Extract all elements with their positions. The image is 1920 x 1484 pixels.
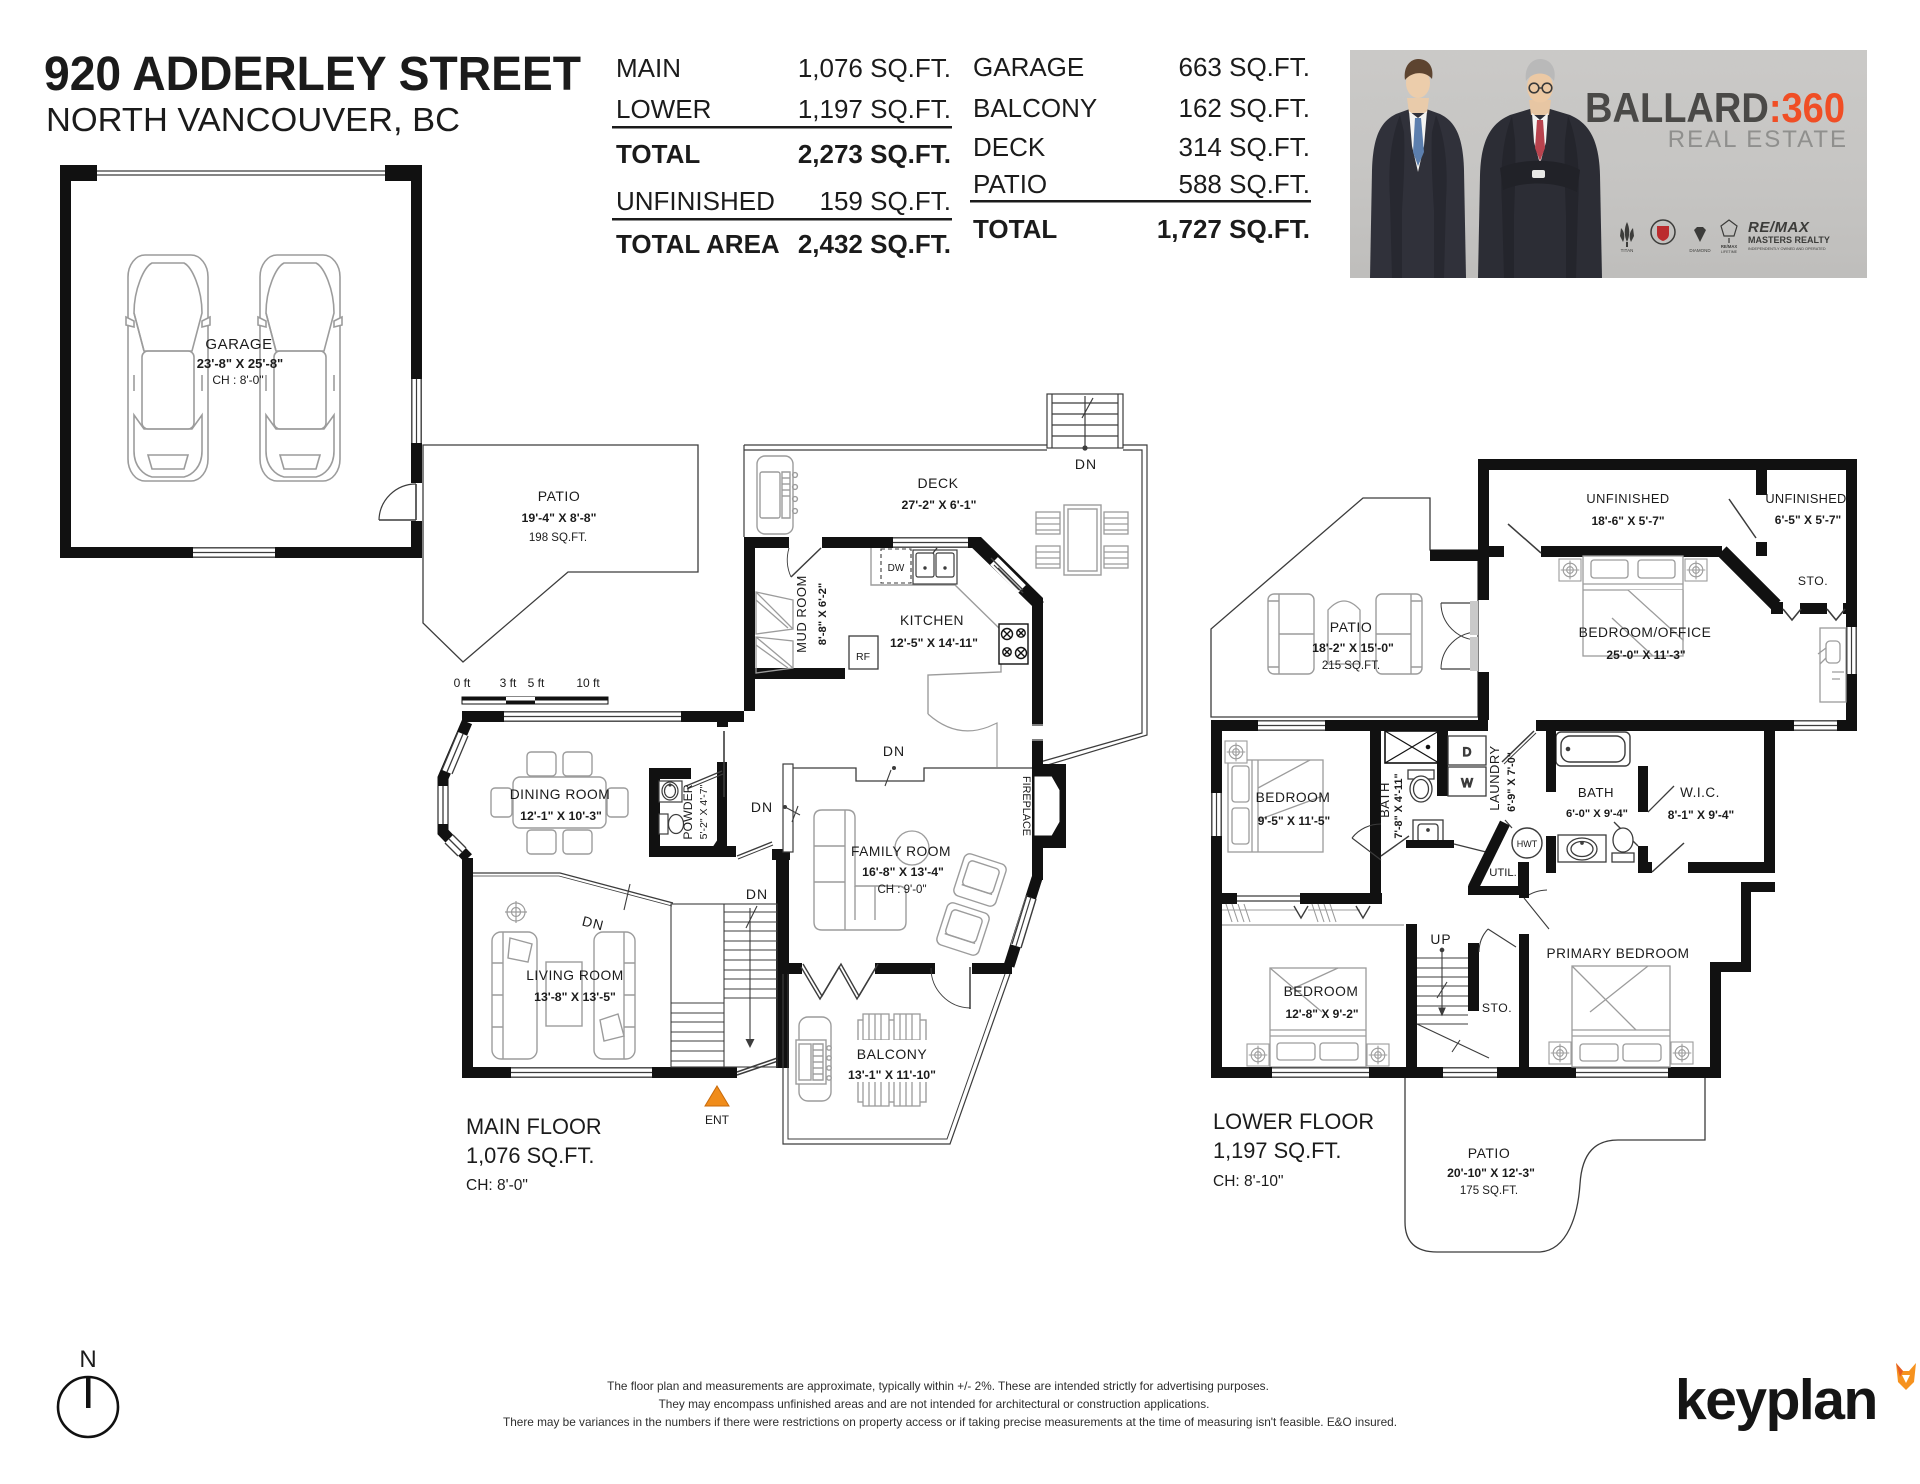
svg-text:TOTAL: TOTAL [616,139,700,169]
svg-text:162 SQ.FT.: 162 SQ.FT. [1179,93,1311,123]
svg-text:The floor plan and measurement: The floor plan and measurements are appr… [607,1379,1269,1393]
svg-text:LAUNDRY: LAUNDRY [1487,745,1502,810]
svg-text:DECK: DECK [973,132,1046,162]
svg-text:1,197 SQ.FT.: 1,197 SQ.FT. [798,94,951,124]
svg-text:BATH: BATH [1377,782,1392,818]
svg-text:8'-8" X 6'-2": 8'-8" X 6'-2" [817,583,829,646]
svg-text:N: N [79,1346,96,1373]
svg-text:PATIO: PATIO [973,169,1047,199]
svg-text:BEDROOM/OFFICE: BEDROOM/OFFICE [1579,625,1712,640]
svg-text:0 ft: 0 ft [454,676,471,690]
svg-text:13'-8" X 13'-5": 13'-8" X 13'-5" [534,990,616,1004]
svg-text:12'-1" X 10'-3": 12'-1" X 10'-3" [520,809,602,823]
svg-text:20'-10" X 12'-3": 20'-10" X 12'-3" [1447,1166,1535,1180]
svg-text:16'-8" X 13'-4": 16'-8" X 13'-4" [862,865,944,879]
svg-text:BALLARD:360: BALLARD:360 [1585,84,1845,131]
svg-text:MAIN FLOOR: MAIN FLOOR [466,1114,602,1139]
svg-text:UNFINISHED: UNFINISHED [1765,491,1846,506]
svg-text:KITCHEN: KITCHEN [900,613,964,628]
svg-text:STO.: STO. [1798,574,1828,588]
svg-text:MASTERS REALTY: MASTERS REALTY [1748,235,1830,245]
svg-text:9'-5" X 11'-5": 9'-5" X 11'-5" [1258,814,1330,828]
svg-text:PATIO: PATIO [1330,619,1372,635]
svg-text:LIFETIME: LIFETIME [1721,250,1738,254]
svg-text:5'-2" X 4'-7": 5'-2" X 4'-7" [698,784,710,839]
svg-text:7'-8" X 4'-11": 7'-8" X 4'-11" [1393,773,1405,838]
svg-text:663 SQ.FT.: 663 SQ.FT. [1179,52,1311,82]
svg-text:GARAGE: GARAGE [973,52,1084,82]
svg-text:TITAN: TITAN [1621,248,1634,253]
svg-text:RE/MAX: RE/MAX [1748,219,1810,236]
svg-text:INDEPENDENTLY OWNED AND OPERAT: INDEPENDENTLY OWNED AND OPERATED [1748,247,1826,251]
svg-text:RF: RF [856,651,870,663]
svg-text:5 ft: 5 ft [528,676,545,690]
svg-text:12'-5" X 14'-11": 12'-5" X 14'-11" [890,636,978,650]
svg-text:LOWER: LOWER [616,94,711,124]
svg-text:159 SQ.FT.: 159 SQ.FT. [820,186,952,216]
svg-text:18'-6" X 5'-7": 18'-6" X 5'-7" [1591,514,1664,528]
svg-text:8'-1" X 9'-4": 8'-1" X 9'-4" [1668,808,1734,822]
svg-text:12'-8" X 9'-2": 12'-8" X 9'-2" [1285,1007,1358,1021]
svg-text:10 ft: 10 ft [576,676,600,690]
svg-text:UNFINISHED: UNFINISHED [1586,491,1669,506]
svg-text:BALCONY: BALCONY [973,93,1097,123]
svg-text:1,727 SQ.FT.: 1,727 SQ.FT. [1157,214,1310,244]
svg-text:BEDROOM: BEDROOM [1284,984,1359,999]
svg-text:DINING ROOM: DINING ROOM [510,787,611,802]
svg-text:6'-5" X 5'-7": 6'-5" X 5'-7" [1775,513,1841,527]
svg-text:DIAMOND: DIAMOND [1689,248,1711,253]
svg-text:TOTAL AREA: TOTAL AREA [616,229,780,259]
svg-text:FAMILY ROOM: FAMILY ROOM [851,844,951,859]
svg-text:920 ADDERLEY STREET: 920 ADDERLEY STREET [44,48,581,101]
svg-text:CH: 8'-10": CH: 8'-10" [1213,1173,1283,1190]
svg-text:25'-0" X 11'-3": 25'-0" X 11'-3" [1606,648,1685,662]
svg-text:1,076 SQ.FT.: 1,076 SQ.FT. [466,1143,594,1168]
svg-text:27'-2" X 6'-1": 27'-2" X 6'-1" [902,498,977,512]
svg-text:TOTAL: TOTAL [973,214,1057,244]
svg-text:BALCONY: BALCONY [857,1046,928,1062]
svg-text:198 SQ.FT.: 198 SQ.FT. [529,532,587,544]
svg-text:175 SQ.FT.: 175 SQ.FT. [1460,1185,1518,1197]
svg-text:CH : 8'-0": CH : 8'-0" [212,373,263,387]
svg-text:STO.: STO. [1482,1001,1512,1015]
svg-text:BATH: BATH [1578,785,1614,800]
svg-text:They may encompass unfinished: They may encompass unfinished areas and … [659,1397,1210,1411]
svg-text:2,432 SQ.FT.: 2,432 SQ.FT. [798,229,951,259]
svg-text:23'-8" X 25'-8": 23'-8" X 25'-8" [197,356,283,371]
svg-text:MAIN: MAIN [616,53,681,83]
svg-text:2,273 SQ.FT.: 2,273 SQ.FT. [798,139,951,169]
svg-text:ENT: ENT [705,1113,730,1127]
svg-text:REAL ESTATE: REAL ESTATE [1668,126,1848,153]
svg-text:GARAGE: GARAGE [205,336,272,353]
svg-text:13'-1" X 11'-10": 13'-1" X 11'-10" [848,1068,936,1082]
svg-text:POWDER: POWDER [681,784,695,839]
svg-text:keyplan: keyplan [1675,1368,1877,1432]
svg-text:W: W [1461,776,1473,790]
svg-text:PATIO: PATIO [1468,1145,1510,1161]
svg-text:DECK: DECK [918,475,959,491]
svg-text:588 SQ.FT.: 588 SQ.FT. [1179,169,1311,199]
svg-text:W.I.C.: W.I.C. [1680,785,1720,800]
svg-text:PATIO: PATIO [538,488,580,504]
svg-text:6'-0" X 9'-4": 6'-0" X 9'-4" [1566,808,1628,820]
svg-text:NORTH VANCOUVER, BC: NORTH VANCOUVER, BC [46,101,460,138]
svg-text:BEDROOM: BEDROOM [1256,790,1331,805]
svg-text:CH : 9'-0": CH : 9'-0" [877,884,926,896]
svg-text:314 SQ.FT.: 314 SQ.FT. [1179,132,1311,162]
svg-text:D: D [1463,745,1472,759]
svg-text:DW: DW [888,563,905,574]
svg-text:UP: UP [1430,932,1451,947]
svg-text:18'-2" X 15'-0": 18'-2" X 15'-0" [1312,641,1394,655]
svg-text:UNFINISHED: UNFINISHED [616,186,775,216]
svg-text:MUD ROOM: MUD ROOM [794,575,809,653]
svg-text:DN: DN [1075,456,1097,472]
svg-text:RE/MAX: RE/MAX [1721,244,1737,249]
svg-text:CH: 8'-0": CH: 8'-0" [466,1177,528,1194]
svg-text:19'-4" X 8'-8": 19'-4" X 8'-8" [522,511,597,525]
svg-text:6'-9" X 7'-0": 6'-9" X 7'-0" [1506,752,1518,812]
svg-text:1,076 SQ.FT.: 1,076 SQ.FT. [798,53,951,83]
svg-text:DN: DN [751,799,773,815]
svg-text:215 SQ.FT.: 215 SQ.FT. [1322,660,1380,672]
svg-text:LOWER FLOOR: LOWER FLOOR [1213,1109,1374,1134]
svg-text:LIVING ROOM: LIVING ROOM [526,968,624,983]
svg-text:DN: DN [746,886,768,902]
svg-text:UTIL.: UTIL. [1489,867,1517,879]
svg-text:DN: DN [883,743,905,759]
svg-text:PRIMARY BEDROOM: PRIMARY BEDROOM [1547,946,1690,961]
svg-text:FIREPLACE: FIREPLACE [1020,776,1032,836]
svg-text:3 ft: 3 ft [500,676,517,690]
svg-text:There may be variances in the: There may be variances in the numbers if… [503,1415,1397,1429]
svg-text:1,197 SQ.FT.: 1,197 SQ.FT. [1213,1138,1341,1163]
svg-text:HWT: HWT [1517,839,1538,849]
